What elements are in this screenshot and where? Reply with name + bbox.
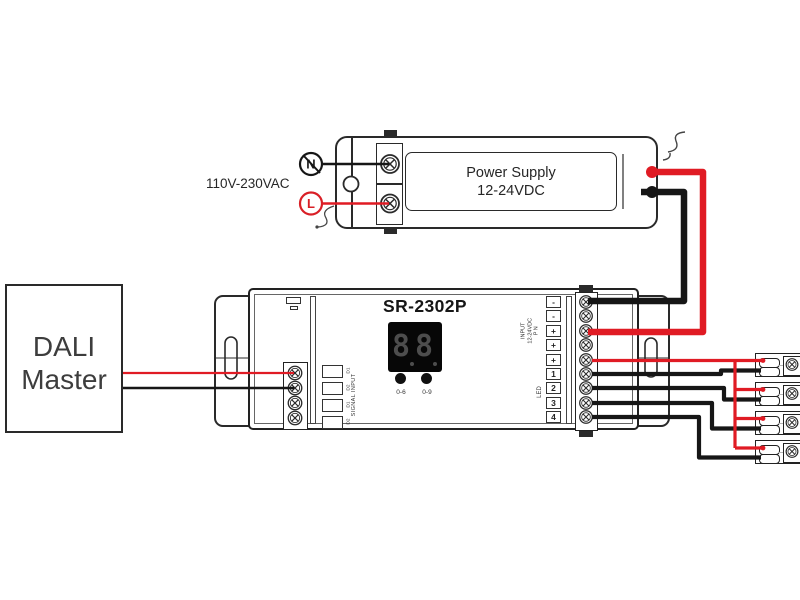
dali-master-line2: Master <box>6 363 122 396</box>
power-supply-name: Power Supply <box>406 164 616 182</box>
terminal-label-plus2: + <box>546 339 561 351</box>
neutral-slash <box>303 155 320 173</box>
display-dot-1 <box>410 362 414 366</box>
dali-master-label: DALI Master <box>6 330 122 396</box>
psu-mount-tab-top <box>384 130 397 137</box>
wiring-diagram: DALI Master 110V-230VAC Power Supply 12-… <box>0 0 800 600</box>
psu-terminal-cell-n <box>376 143 403 184</box>
led-connector-4 <box>755 440 800 464</box>
connector-screw-box <box>783 443 800 463</box>
address-button-left <box>395 373 406 384</box>
signal-terminal-block <box>283 362 308 430</box>
led-connector-2 <box>755 382 800 406</box>
live-letter: L <box>307 196 315 211</box>
power-supply-voltage: 12-24VDC <box>406 182 616 200</box>
wire-pad <box>759 416 780 426</box>
address-button-right-label: 0-9 <box>415 389 439 396</box>
seven-segment-display: 8 8 <box>388 322 442 372</box>
neutral-letter: N <box>306 157 315 172</box>
signal-indicator-1 <box>322 365 343 378</box>
output-terminal-block <box>575 292 598 431</box>
display-digit-2: 8 <box>415 332 433 362</box>
address-button-right <box>421 373 432 384</box>
terminal-label-ch1: 1 <box>546 368 561 380</box>
signal-indicator-2 <box>322 382 343 395</box>
wire-pad <box>759 425 780 435</box>
ac-voltage-label: 110V-230VAC <box>206 176 306 191</box>
psu-terminal-cell-l <box>376 184 403 225</box>
pcb-edge-left <box>310 296 316 424</box>
power-legend-line3: P N <box>533 296 540 366</box>
signal-indicator-4 <box>322 416 343 429</box>
terminal-label-plus3: + <box>546 354 561 366</box>
psu-divider-line <box>351 137 353 228</box>
address-button-left-label: 0-6 <box>389 389 413 396</box>
power-supply-label: Power Supply 12-24VDC <box>405 152 617 211</box>
squiggle-dot <box>315 225 318 228</box>
display-dot-2 <box>433 362 437 366</box>
terminal-label-minus2: - <box>546 310 561 322</box>
connector-screw-box <box>783 356 800 376</box>
wire-pad <box>759 445 780 455</box>
led-legend: LED <box>537 377 543 407</box>
signal-indicator-3 <box>322 399 343 412</box>
dali-master-line1: DALI <box>6 330 122 363</box>
pcb-edge-right <box>566 296 572 424</box>
terminal-label-ch2: 2 <box>546 382 561 394</box>
led-connector-3 <box>755 411 800 435</box>
signal-input-legend: SIGNAL INPUT <box>351 365 357 425</box>
wire-pad <box>759 367 780 377</box>
wire-pad <box>759 454 780 464</box>
model-label: SR-2302P <box>355 296 495 317</box>
cable-squiggle-psu <box>663 132 685 160</box>
wire-pad <box>759 396 780 406</box>
connector-screw-box <box>783 385 800 405</box>
clip-top-left <box>286 297 301 304</box>
controller-end-cap-right <box>637 295 670 427</box>
terminal-label-minus1: - <box>546 296 561 308</box>
power-input-legend: INPUT 12-24VDC P N <box>520 296 540 366</box>
controller-end-cap-left <box>214 295 250 427</box>
wire-pad <box>759 358 780 368</box>
display-digit-1: 8 <box>392 332 410 362</box>
psu-mount-tab-bottom <box>384 227 397 234</box>
terminal-label-plus1: + <box>546 325 561 337</box>
cable-squiggle-live <box>318 206 334 227</box>
led-connector-1 <box>755 353 800 377</box>
terminal-label-ch4: 4 <box>546 411 561 423</box>
clip-top-left-small <box>290 306 298 310</box>
connector-screw-box <box>783 414 800 434</box>
terminal-label-ch3: 3 <box>546 397 561 409</box>
wire-pad <box>759 387 780 397</box>
